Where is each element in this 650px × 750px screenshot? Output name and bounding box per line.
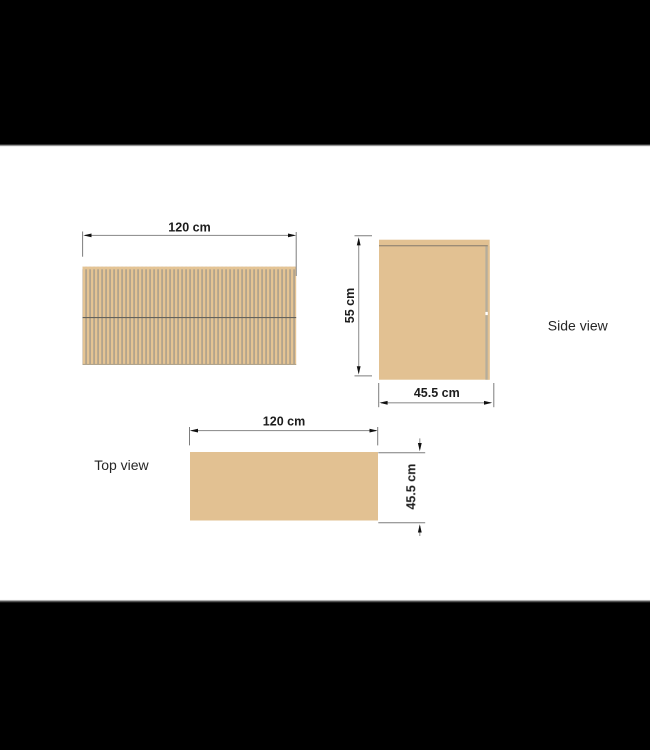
svg-text:45.5 cm: 45.5 cm bbox=[414, 386, 460, 400]
svg-text:Top view: Top view bbox=[94, 457, 149, 473]
svg-text:Side view: Side view bbox=[548, 317, 609, 333]
svg-text:120 cm: 120 cm bbox=[168, 220, 210, 234]
svg-text:45.5 cm: 45.5 cm bbox=[405, 464, 419, 510]
svg-text:55 cm: 55 cm bbox=[343, 288, 357, 323]
svg-text:120 cm: 120 cm bbox=[263, 415, 305, 429]
